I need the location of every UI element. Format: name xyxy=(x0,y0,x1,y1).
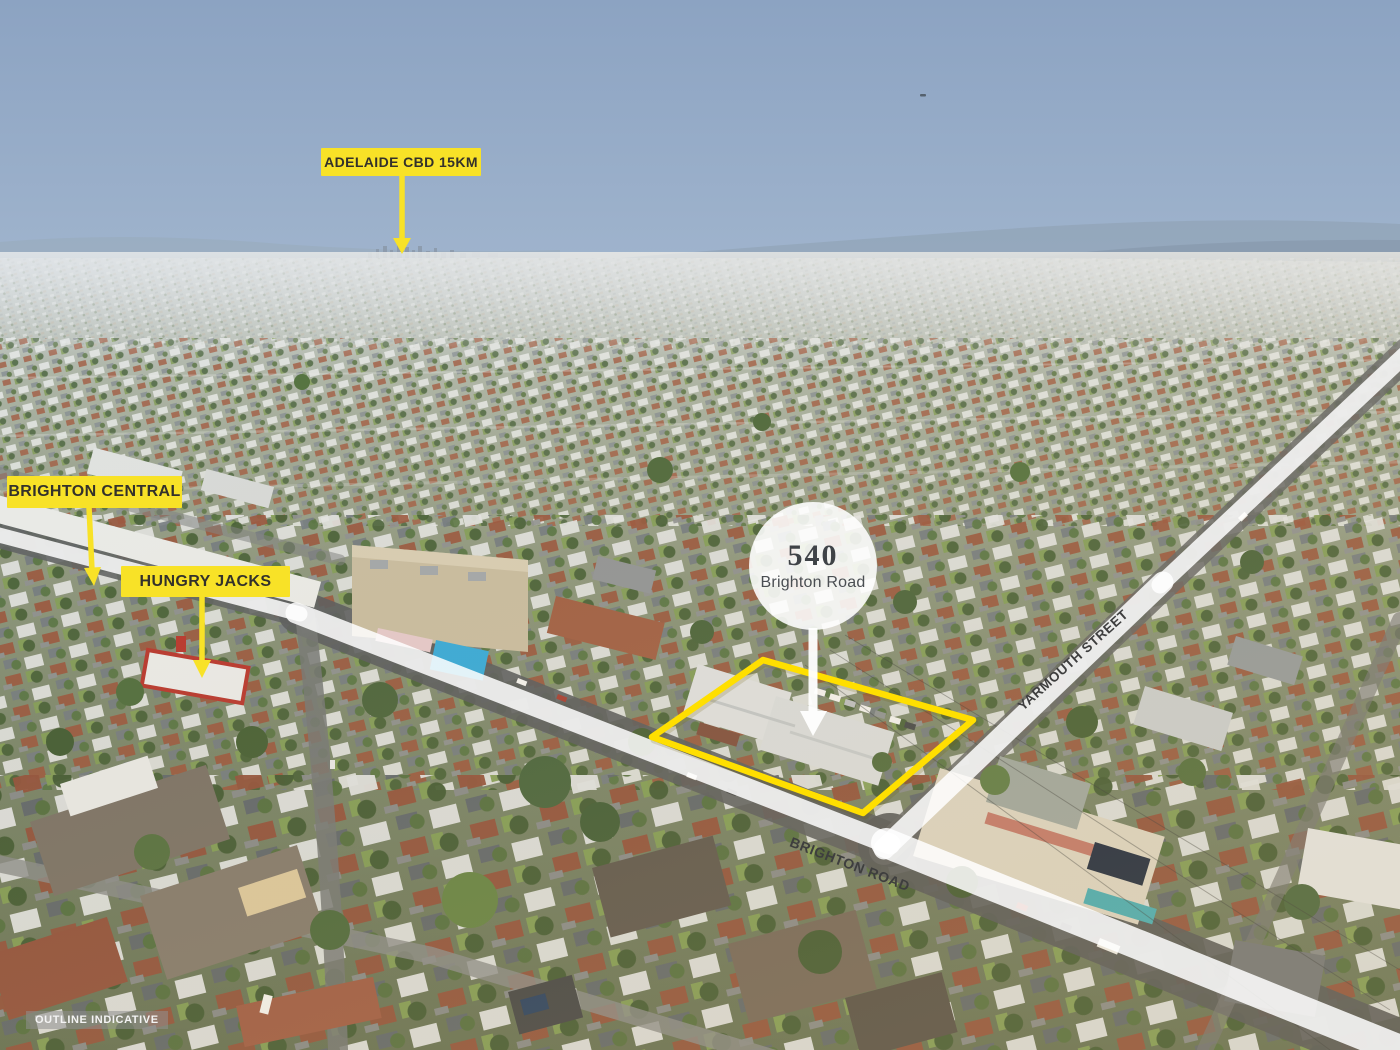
photo-annotations xyxy=(0,0,1400,1050)
property-address-badge: 540 Brighton Road xyxy=(749,502,877,630)
brighton-road-overlay xyxy=(0,531,1400,1050)
callout-arrow-brighton-central xyxy=(84,507,101,586)
outline-indicative-note: OUTLINE INDICATIVE xyxy=(26,1011,168,1029)
callout-adelaide-cbd: ADELAIDE CBD 15KM xyxy=(321,148,481,176)
property-street: Brighton Road xyxy=(761,574,866,592)
property-number: 540 xyxy=(788,540,839,572)
yarmouth-street-overlay xyxy=(884,352,1400,849)
callout-brighton-central: BRIGHTON CENTRAL xyxy=(7,476,182,508)
aerial-photo: ADELAIDE CBD 15KM BRIGHTON CENTRAL HUNGR… xyxy=(0,0,1400,1050)
callout-arrow-adelaide-cbd xyxy=(393,176,411,254)
callout-arrow-hungry-jacks xyxy=(193,597,211,678)
callout-brighton-central-label: BRIGHTON CENTRAL xyxy=(8,483,180,501)
callout-hungry-jacks-label: HUNGRY JACKS xyxy=(140,573,272,591)
callout-adelaide-cbd-label: ADELAIDE CBD 15KM xyxy=(324,154,478,170)
callout-hungry-jacks: HUNGRY JACKS xyxy=(121,566,290,597)
